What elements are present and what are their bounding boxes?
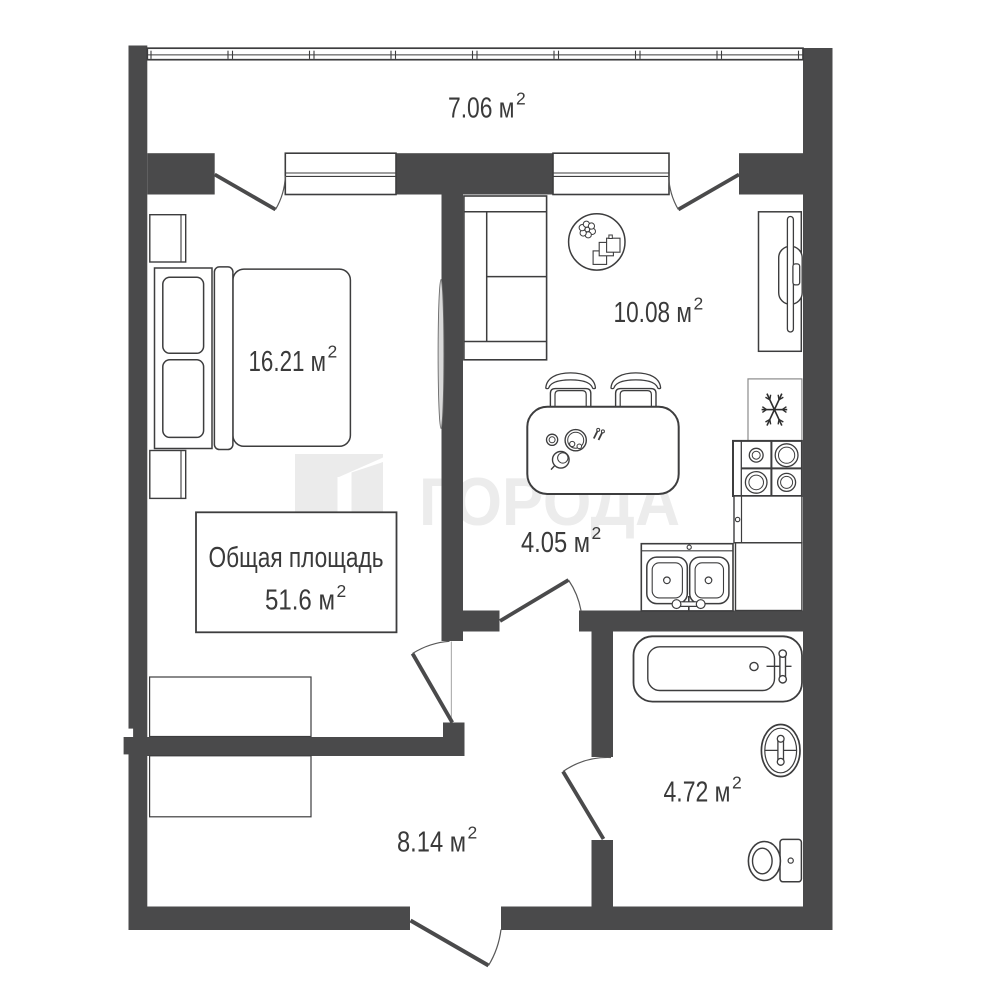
svg-text:Общая площадь: Общая площадь <box>209 542 384 574</box>
svg-text:2: 2 <box>592 523 602 543</box>
svg-text:2: 2 <box>337 581 347 601</box>
svg-text:51.6 м: 51.6 м <box>265 585 335 617</box>
svg-text:4.05 м: 4.05 м <box>521 527 590 559</box>
svg-text:2: 2 <box>732 773 742 793</box>
svg-text:10.08 м: 10.08 м <box>614 297 693 329</box>
svg-text:2: 2 <box>694 294 704 314</box>
svg-text:2: 2 <box>516 89 526 109</box>
svg-text:8.14 м: 8.14 м <box>397 827 466 859</box>
svg-text:2: 2 <box>468 823 478 843</box>
svg-text:2: 2 <box>328 342 338 362</box>
svg-text:7.06 м: 7.06 м <box>448 93 515 125</box>
svg-text:4.72 м: 4.72 м <box>664 777 731 809</box>
svg-text:16.21 м: 16.21 м <box>249 346 327 378</box>
